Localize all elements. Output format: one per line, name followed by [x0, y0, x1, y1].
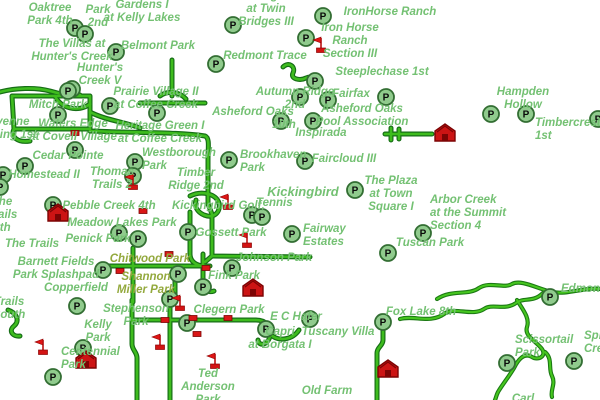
- svg-text:P: P: [113, 48, 120, 59]
- parking-icon[interactable]: P: [195, 279, 211, 295]
- parking-icon[interactable]: P: [170, 266, 186, 282]
- parking-icon[interactable]: P: [415, 225, 431, 241]
- svg-text:P: P: [289, 230, 296, 241]
- svg-text:P: P: [263, 325, 270, 336]
- svg-text:P: P: [185, 228, 192, 239]
- red-marker-icon[interactable]: [202, 266, 210, 271]
- svg-text:P: P: [320, 12, 327, 23]
- trail-path: [90, 112, 140, 128]
- red-marker-icon[interactable]: [165, 252, 173, 257]
- svg-text:P: P: [310, 117, 317, 128]
- svg-text:P: P: [74, 302, 81, 313]
- red-marker-icon[interactable]: [189, 316, 197, 321]
- parking-icon[interactable]: P: [111, 225, 127, 241]
- svg-text:P: P: [82, 30, 89, 41]
- svg-text:P: P: [226, 156, 233, 167]
- svg-text:P: P: [547, 293, 554, 304]
- svg-text:P: P: [229, 264, 236, 275]
- red-marker-icon[interactable]: [193, 332, 201, 337]
- svg-text:P: P: [154, 109, 161, 120]
- golf-flag-icon[interactable]: [239, 232, 252, 248]
- svg-text:P: P: [135, 235, 142, 246]
- svg-text:P: P: [312, 77, 319, 88]
- parking-icon[interactable]: P: [378, 89, 394, 105]
- svg-text:P: P: [259, 213, 266, 224]
- parking-icon[interactable]: P: [298, 30, 314, 46]
- svg-text:P: P: [100, 266, 107, 277]
- parking-icon[interactable]: P: [347, 182, 363, 198]
- svg-text:P: P: [278, 117, 285, 128]
- svg-text:P: P: [595, 115, 600, 126]
- red-marker-icon[interactable]: [116, 269, 124, 274]
- svg-text:P: P: [307, 315, 314, 326]
- parking-icon[interactable]: P: [69, 298, 85, 314]
- parking-icon[interactable]: P: [315, 8, 331, 24]
- parking-icon[interactable]: P: [60, 83, 76, 99]
- svg-text:P: P: [302, 157, 309, 168]
- parking-icon[interactable]: P: [77, 26, 93, 42]
- golf-flag-icon[interactable]: [220, 194, 233, 210]
- golf-flag-icon[interactable]: [35, 339, 48, 355]
- parking-icon[interactable]: P: [518, 106, 534, 122]
- parking-icon[interactable]: P: [95, 262, 111, 278]
- golf-flag-icon[interactable]: [152, 334, 165, 350]
- parking-icon[interactable]: P: [108, 44, 124, 60]
- creek-path: [495, 300, 543, 400]
- svg-text:P: P: [504, 359, 511, 370]
- golf-flag-icon[interactable]: [207, 353, 220, 369]
- svg-text:P: P: [523, 110, 530, 121]
- svg-text:P: P: [116, 229, 123, 240]
- parking-icon[interactable]: P: [320, 92, 336, 108]
- svg-text:P: P: [571, 357, 578, 368]
- parking-icon[interactable]: P: [180, 224, 196, 240]
- svg-text:P: P: [385, 249, 392, 260]
- parking-icon[interactable]: P: [292, 89, 308, 105]
- parking-icon[interactable]: P: [590, 111, 600, 127]
- parking-icon[interactable]: P: [258, 321, 274, 337]
- red-marker-icon[interactable]: [139, 209, 147, 214]
- parking-icon[interactable]: P: [307, 73, 323, 89]
- parking-icon[interactable]: P: [305, 113, 321, 129]
- svg-text:P: P: [303, 34, 310, 45]
- parking-icon[interactable]: P: [297, 153, 313, 169]
- svg-text:P: P: [132, 158, 139, 169]
- svg-text:P: P: [380, 318, 387, 329]
- school-icon[interactable]: [243, 279, 263, 296]
- svg-text:P: P: [352, 186, 359, 197]
- parking-icon[interactable]: P: [221, 152, 237, 168]
- svg-text:P: P: [383, 93, 390, 104]
- red-marker-icon[interactable]: [224, 316, 232, 321]
- svg-text:P: P: [0, 183, 4, 194]
- trail-path: [133, 320, 270, 344]
- trail-path: [377, 321, 383, 400]
- parking-icon[interactable]: P: [208, 56, 224, 72]
- svg-text:P: P: [213, 60, 220, 71]
- parking-icon[interactable]: P: [67, 142, 83, 158]
- parking-icon[interactable]: P: [0, 179, 8, 195]
- parking-icon[interactable]: P: [542, 289, 558, 305]
- svg-text:P: P: [22, 162, 29, 173]
- parking-icon[interactable]: P: [224, 260, 240, 276]
- svg-text:P: P: [167, 295, 174, 306]
- parking-icon[interactable]: P: [130, 231, 146, 247]
- svg-text:P: P: [230, 21, 237, 32]
- parking-icon[interactable]: P: [45, 369, 61, 385]
- svg-text:P: P: [420, 229, 427, 240]
- svg-text:P: P: [72, 146, 79, 157]
- map-canvas[interactable]: PPPPPPPPPPPPPPPPPPPPPPPPPPPPPPPPPPPPPPPP…: [0, 0, 600, 400]
- parking-icon[interactable]: P: [17, 158, 33, 174]
- parking-icon[interactable]: P: [566, 353, 582, 369]
- school-icon[interactable]: [435, 124, 455, 141]
- svg-text:P: P: [50, 373, 57, 384]
- parking-icon[interactable]: P: [284, 226, 300, 242]
- map-graphics: PPPPPPPPPPPPPPPPPPPPPPPPPPPPPPPPPPPPPPPP…: [0, 0, 600, 400]
- red-marker-icon[interactable]: [71, 131, 79, 136]
- svg-text:P: P: [55, 111, 62, 122]
- parking-icon[interactable]: P: [102, 98, 118, 114]
- parking-icon[interactable]: P: [50, 107, 66, 123]
- parking-icon[interactable]: P: [483, 106, 499, 122]
- svg-text:P: P: [175, 270, 182, 281]
- trail-path: [133, 320, 270, 344]
- svg-text:P: P: [488, 110, 495, 121]
- red-marker-icon[interactable]: [161, 318, 169, 323]
- parking-icon[interactable]: P: [225, 17, 241, 33]
- golf-flag-icon[interactable]: [313, 37, 326, 53]
- parking-icon[interactable]: P: [375, 314, 391, 330]
- svg-text:P: P: [325, 96, 332, 107]
- svg-text:P: P: [65, 87, 72, 98]
- parking-icon[interactable]: P: [499, 355, 515, 371]
- parking-icon[interactable]: P: [302, 311, 318, 327]
- parking-icon[interactable]: P: [149, 105, 165, 121]
- school-icon[interactable]: [378, 360, 398, 377]
- parking-icon[interactable]: P: [273, 113, 289, 129]
- svg-text:P: P: [107, 102, 114, 113]
- parking-icon[interactable]: P: [380, 245, 396, 261]
- parking-icon[interactable]: P: [254, 209, 270, 225]
- svg-text:P: P: [200, 283, 207, 294]
- svg-text:P: P: [297, 93, 304, 104]
